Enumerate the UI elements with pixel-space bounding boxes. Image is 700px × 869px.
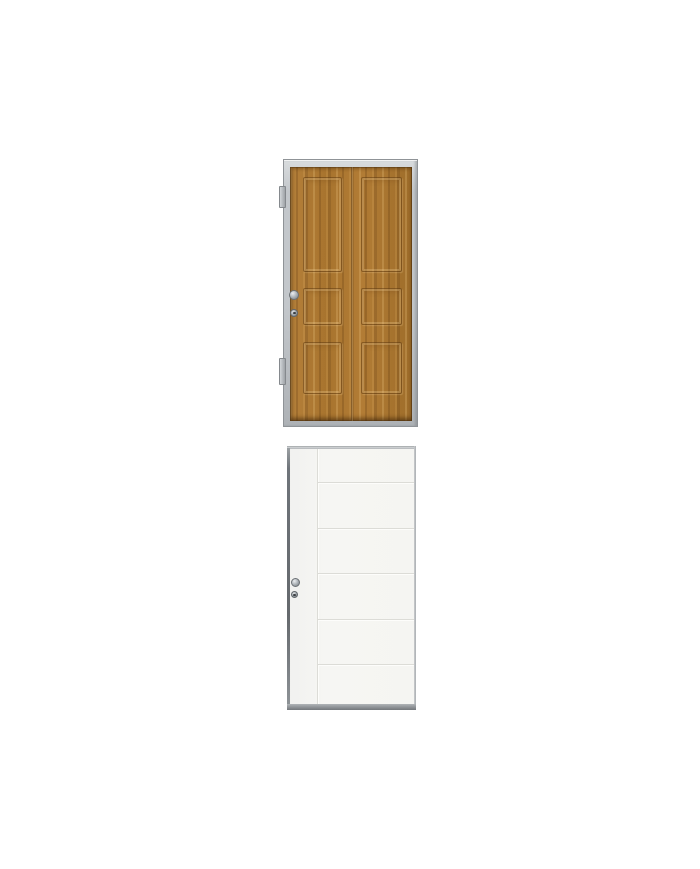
door-frame-right [414,446,416,710]
door-frame-top [287,446,416,449]
hinge-top [279,186,286,208]
hinge-bottom [279,358,286,385]
center-stile-seam [351,167,353,421]
product-image-canvas [0,0,700,869]
lock-cylinder [291,591,298,598]
door-panel [303,177,342,272]
door-panel [303,342,342,394]
door-panel [361,177,402,272]
door-knob [289,290,299,300]
horizontal-groove [318,573,414,574]
door-sill [287,704,416,710]
horizontal-groove [318,664,414,665]
vertical-groove [317,449,318,704]
door-edge-left [287,448,290,705]
door-panel [361,288,402,325]
horizontal-groove [318,528,414,529]
door-panel [361,342,402,394]
lock-cylinder [290,309,298,317]
horizontal-groove [318,482,414,483]
oak-door-leaf [290,167,412,421]
door-panel [303,288,342,325]
horizontal-groove [318,619,414,620]
oak-six-panel-door-image[interactable] [283,159,418,427]
door-knob [291,578,300,587]
white-grooved-door-image[interactable] [287,446,416,710]
